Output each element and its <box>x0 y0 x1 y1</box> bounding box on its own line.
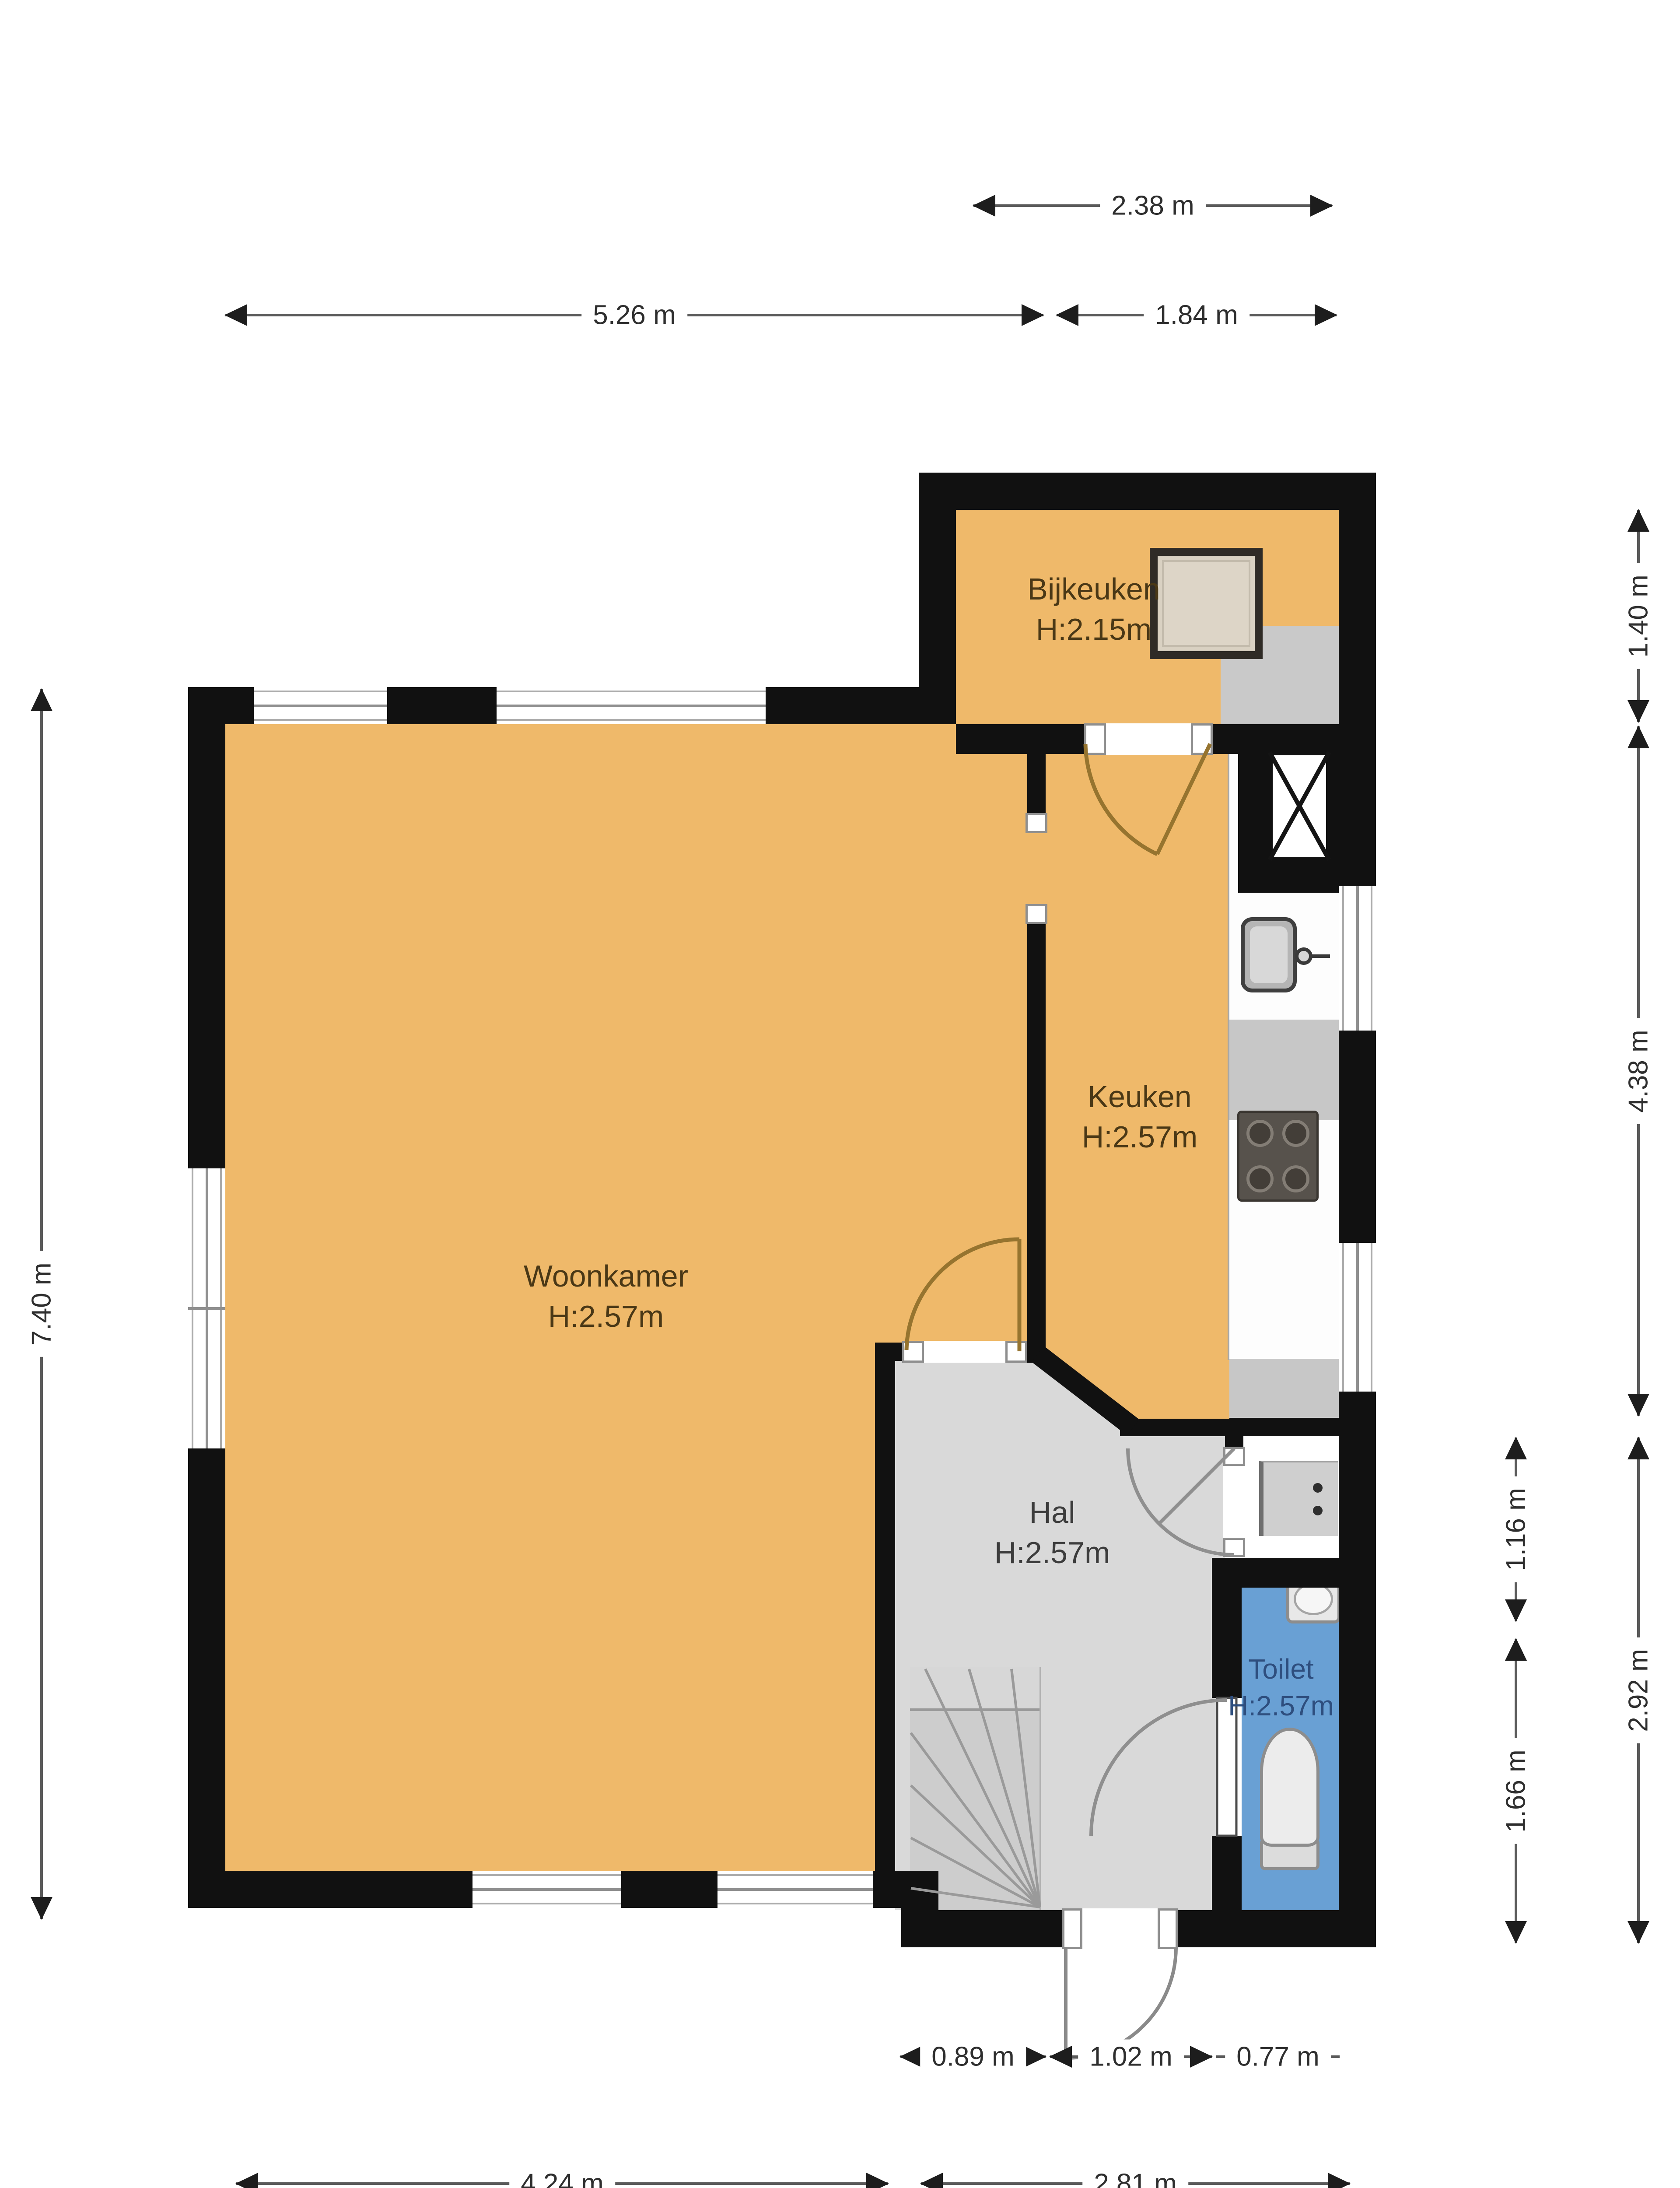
wall-left <box>188 1448 225 1908</box>
wall-right <box>1339 1392 1376 1947</box>
wall-bottom <box>621 1871 717 1908</box>
stove-icon <box>1237 1111 1319 1202</box>
wall-toilet-north <box>1212 1558 1339 1588</box>
washing-machine-icon <box>1150 548 1263 659</box>
room-label-keuken: KeukenH:2.57m <box>1082 1076 1198 1157</box>
room-label-woonkamer: WoonkamerH:2.57m <box>524 1256 688 1337</box>
keuken-floor <box>1046 724 1229 1361</box>
wall-bottom-right <box>919 1910 1063 1947</box>
window-top-1 <box>254 687 387 724</box>
wall-woonkamer-hal <box>875 1343 895 1871</box>
room-label-toilet: ToiletH:2.57m <box>1228 1651 1334 1725</box>
window-left <box>188 1168 225 1448</box>
hall-washbasin-icon <box>1259 1461 1338 1536</box>
window-bottom-1 <box>472 1871 621 1908</box>
wall-bottom-right <box>1177 1910 1376 1947</box>
wall-annex-left <box>919 473 956 724</box>
wall-bijkeuken-south <box>956 724 1085 754</box>
counter-edge-line <box>1228 744 1229 1418</box>
wall-bottom <box>188 1871 472 1908</box>
kitchen-sink-icon <box>1241 917 1297 992</box>
room-label-bijkeuken: BijkeukenH:2.15m <box>1027 569 1160 650</box>
wall-toilet-west <box>1212 1836 1242 1910</box>
floor-plan: BijkeukenH:2.15m WoonkamerH:2.57m Keuken… <box>0 0 1680 2188</box>
wall-right <box>1339 1031 1376 1243</box>
wall-keuken-hal <box>1120 1418 1339 1436</box>
window-kitchen-1 <box>1339 886 1376 1031</box>
wall-woonkamer-keuken <box>1027 724 1046 814</box>
window-kitchen-2 <box>1339 1243 1376 1392</box>
window-bottom-2 <box>717 1871 873 1908</box>
wall-woonkamer-keuken <box>1027 908 1046 1363</box>
room-label-hal: HalH:2.57m <box>994 1492 1110 1573</box>
toilet-bowl-icon <box>1260 1728 1319 1847</box>
wall-left <box>188 687 225 1168</box>
wall-bijkeuken-south <box>1212 724 1238 754</box>
kitchen-counter-section <box>1229 1020 1339 1120</box>
window-top-2 <box>497 687 766 724</box>
wall-right <box>1339 473 1376 886</box>
kitchen-counter-section <box>1229 1359 1339 1418</box>
wall-annex-top <box>919 473 1376 510</box>
shaft-icon <box>1267 749 1332 863</box>
